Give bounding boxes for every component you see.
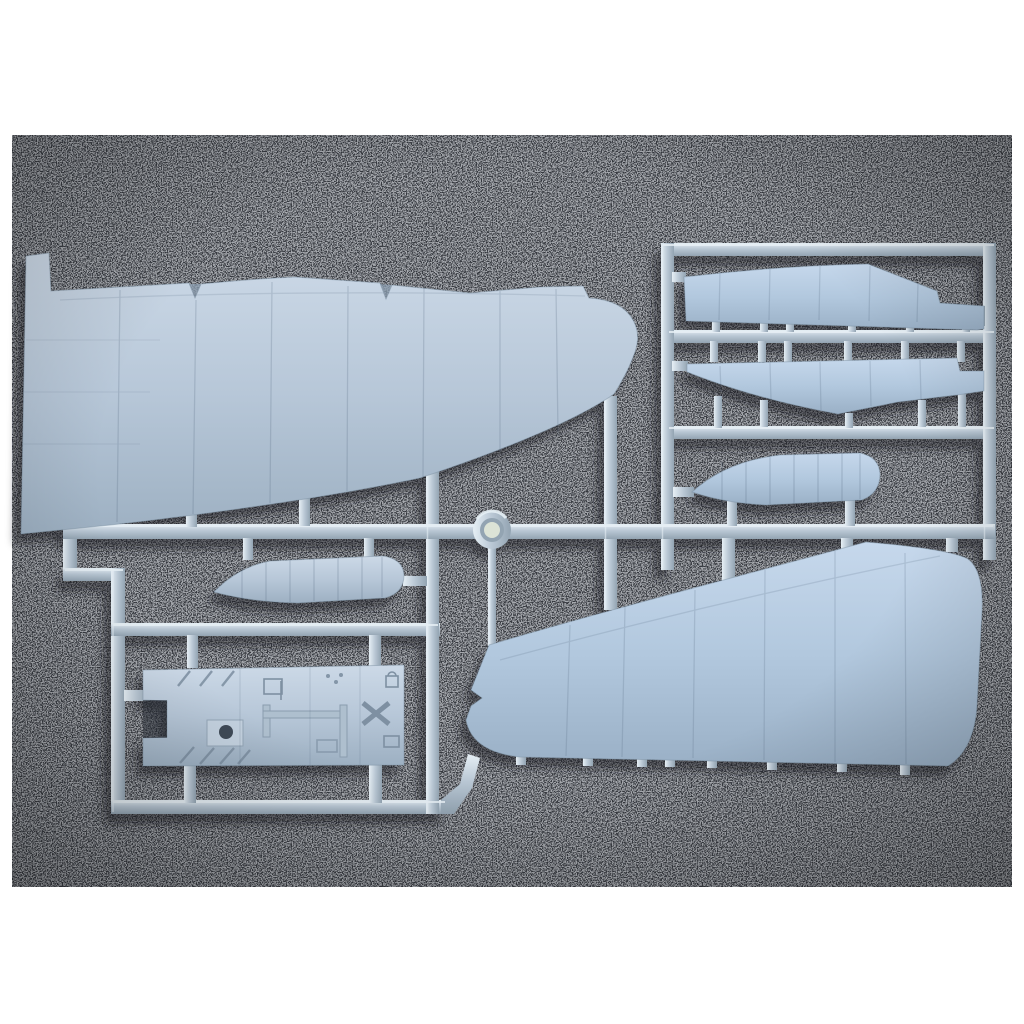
photo-vignette [12, 135, 1012, 887]
photograph [12, 135, 1012, 887]
photo-of-model-kit-sprue: Photograph of a light blue-grey injectio… [0, 0, 1024, 1024]
sprue-photo-svg: Photograph of a light blue-grey injectio… [0, 0, 1024, 1024]
